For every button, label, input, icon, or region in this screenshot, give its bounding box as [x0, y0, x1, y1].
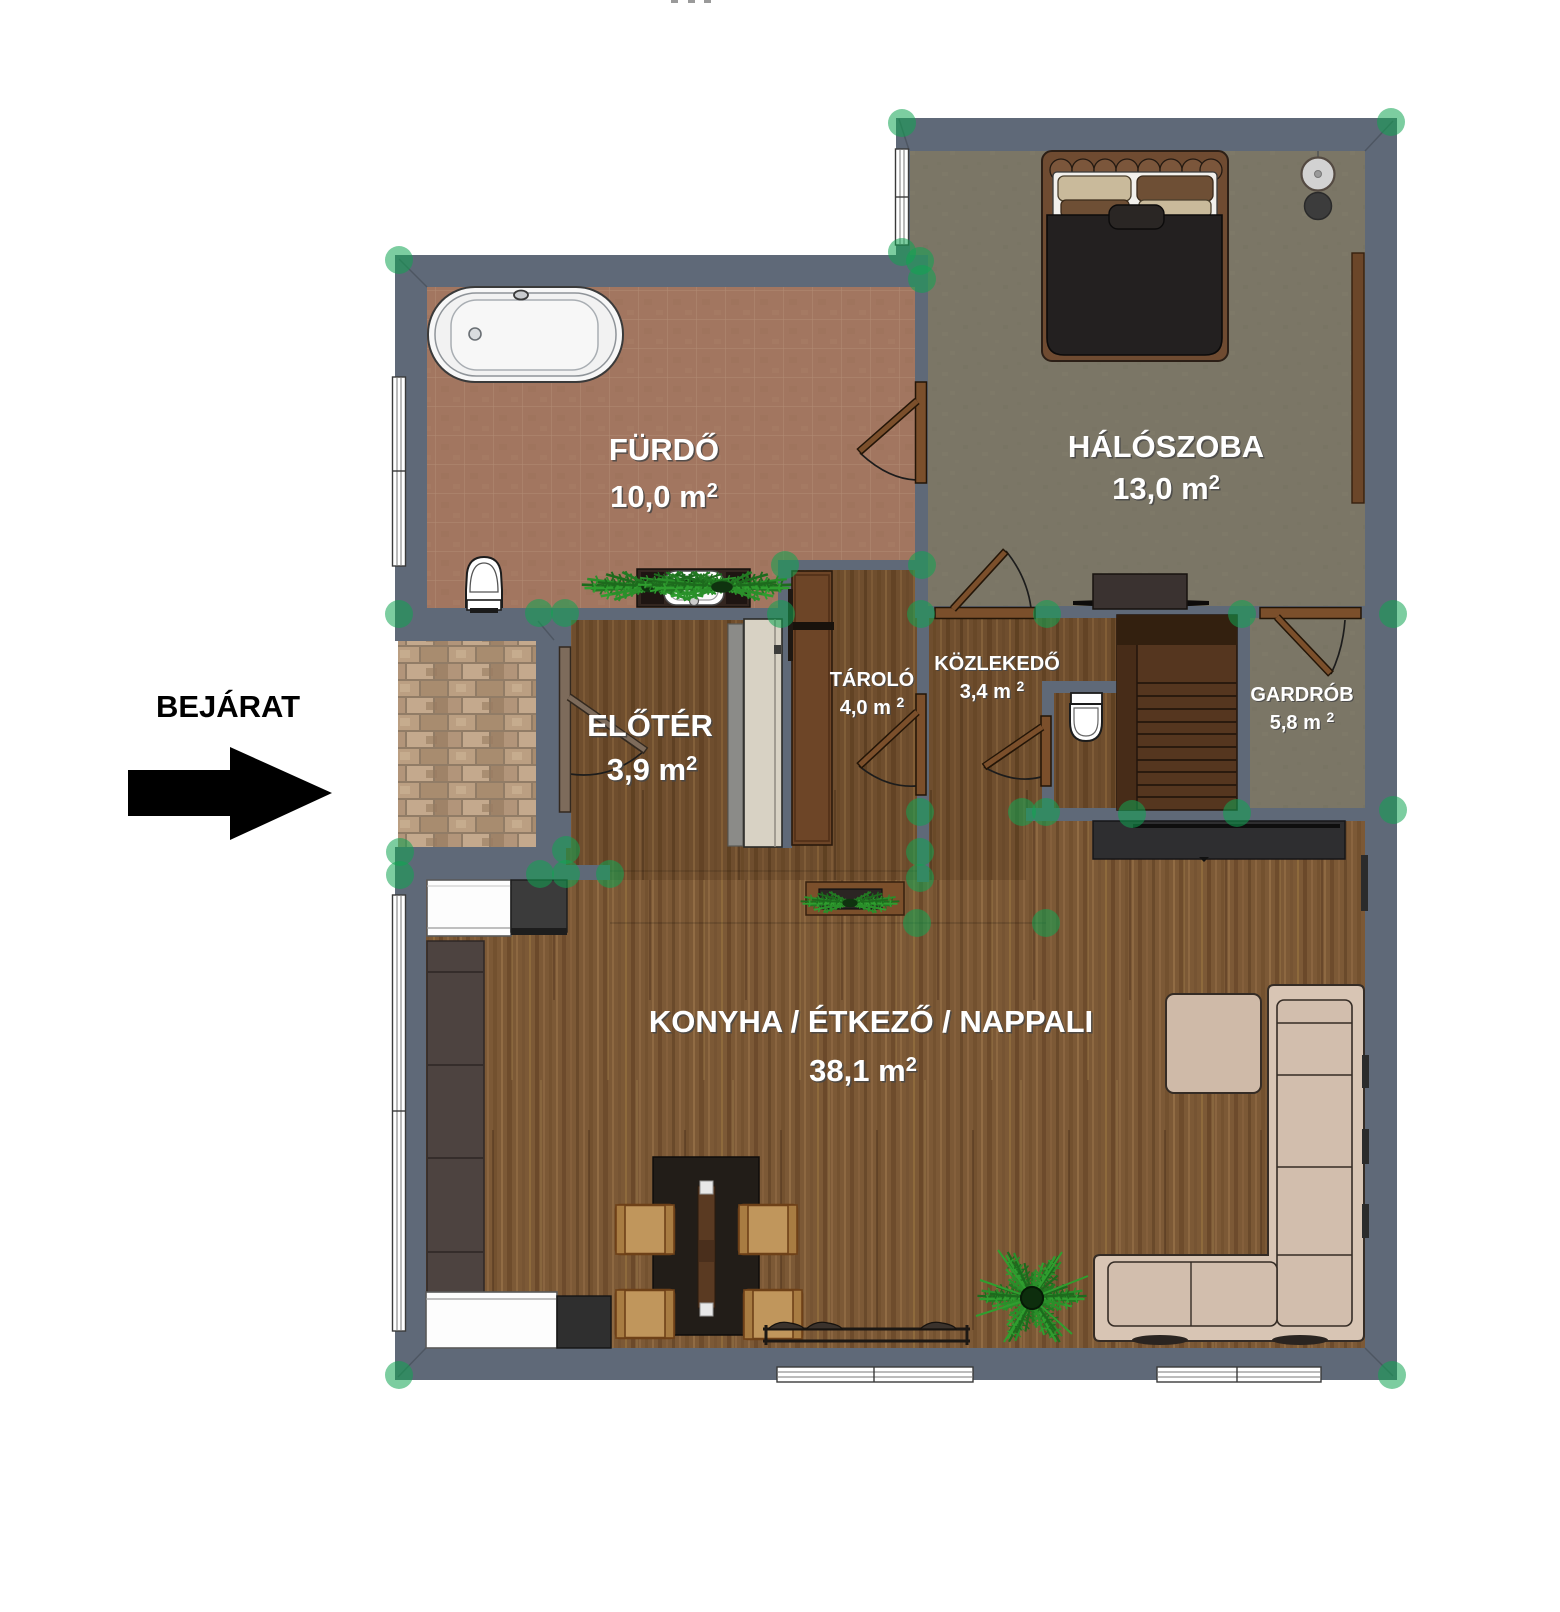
svg-text:GARDRÓB: GARDRÓB [1250, 682, 1353, 706]
svg-text:HÁLÓSZOBA: HÁLÓSZOBA [1068, 428, 1264, 464]
svg-text:38,1 m2: 38,1 m2 [809, 1053, 917, 1088]
svg-text:13,0 m2: 13,0 m2 [1112, 471, 1220, 506]
svg-text:BEJÁRAT: BEJÁRAT [156, 689, 300, 724]
svg-text:ELŐTÉR: ELŐTÉR [587, 707, 713, 743]
svg-text:3,4 m 2: 3,4 m 2 [960, 678, 1025, 703]
svg-text:3,9 m2: 3,9 m2 [607, 752, 697, 787]
svg-text:5,8 m 2: 5,8 m 2 [1270, 709, 1335, 734]
svg-text:KÖZLEKEDŐ: KÖZLEKEDŐ [934, 652, 1060, 675]
svg-text:4,0 m 2: 4,0 m 2 [840, 694, 905, 719]
svg-text:10,0 m2: 10,0 m2 [610, 479, 718, 514]
svg-text:FÜRDŐ: FÜRDŐ [609, 431, 719, 467]
svg-text:TÁROLÓ: TÁROLÓ [830, 667, 914, 691]
svg-text:KONYHA / ÉTKEZŐ / NAPPALI: KONYHA / ÉTKEZŐ / NAPPALI [649, 1003, 1093, 1039]
